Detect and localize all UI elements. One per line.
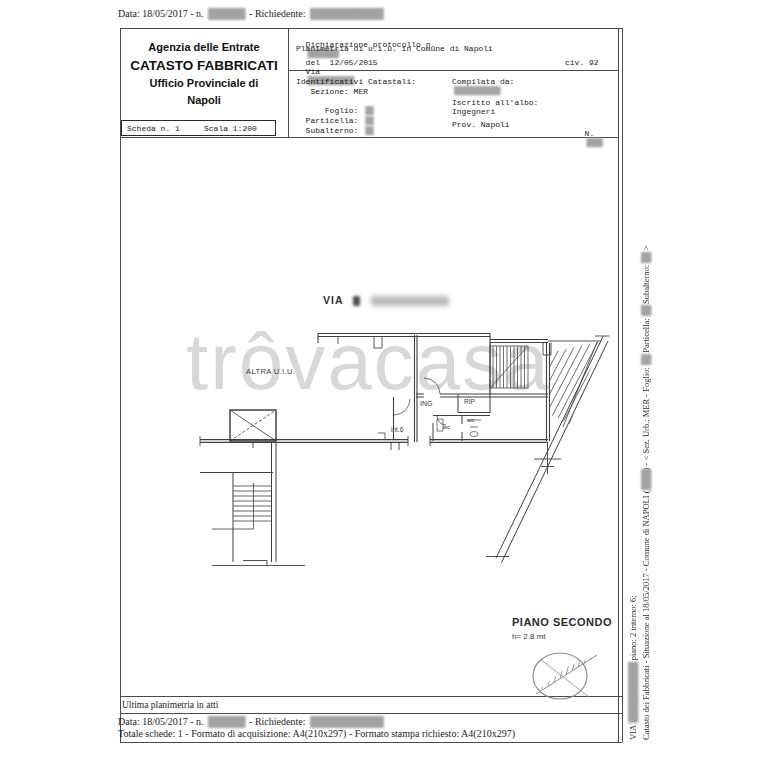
room-label-int6: int.6 bbox=[391, 427, 403, 434]
stairwell bbox=[200, 443, 305, 566]
street-label: VIA bbox=[323, 295, 449, 306]
floor-plan-svg bbox=[0, 0, 768, 768]
interior-stairs bbox=[490, 346, 528, 388]
floor-label: PIANO SECONDO bbox=[512, 617, 612, 628]
room-label-wc-right: wc bbox=[467, 417, 474, 423]
room-label-wc-left: wc bbox=[443, 424, 450, 430]
street-name-redacted-initial bbox=[353, 296, 360, 306]
street-stairs-hatch bbox=[460, 330, 618, 445]
compass-icon bbox=[533, 650, 598, 700]
height-label: h= 2.8 mt bbox=[512, 633, 546, 641]
room-label-ing: ING bbox=[420, 400, 432, 407]
room-label-altra-uiu: ALTRA U.I.U. bbox=[246, 368, 295, 376]
room-label-rip: RIP bbox=[464, 399, 475, 406]
street-name-redacted bbox=[371, 296, 449, 306]
street-name-visible: VIA bbox=[323, 294, 343, 306]
plan-walls bbox=[200, 334, 601, 475]
